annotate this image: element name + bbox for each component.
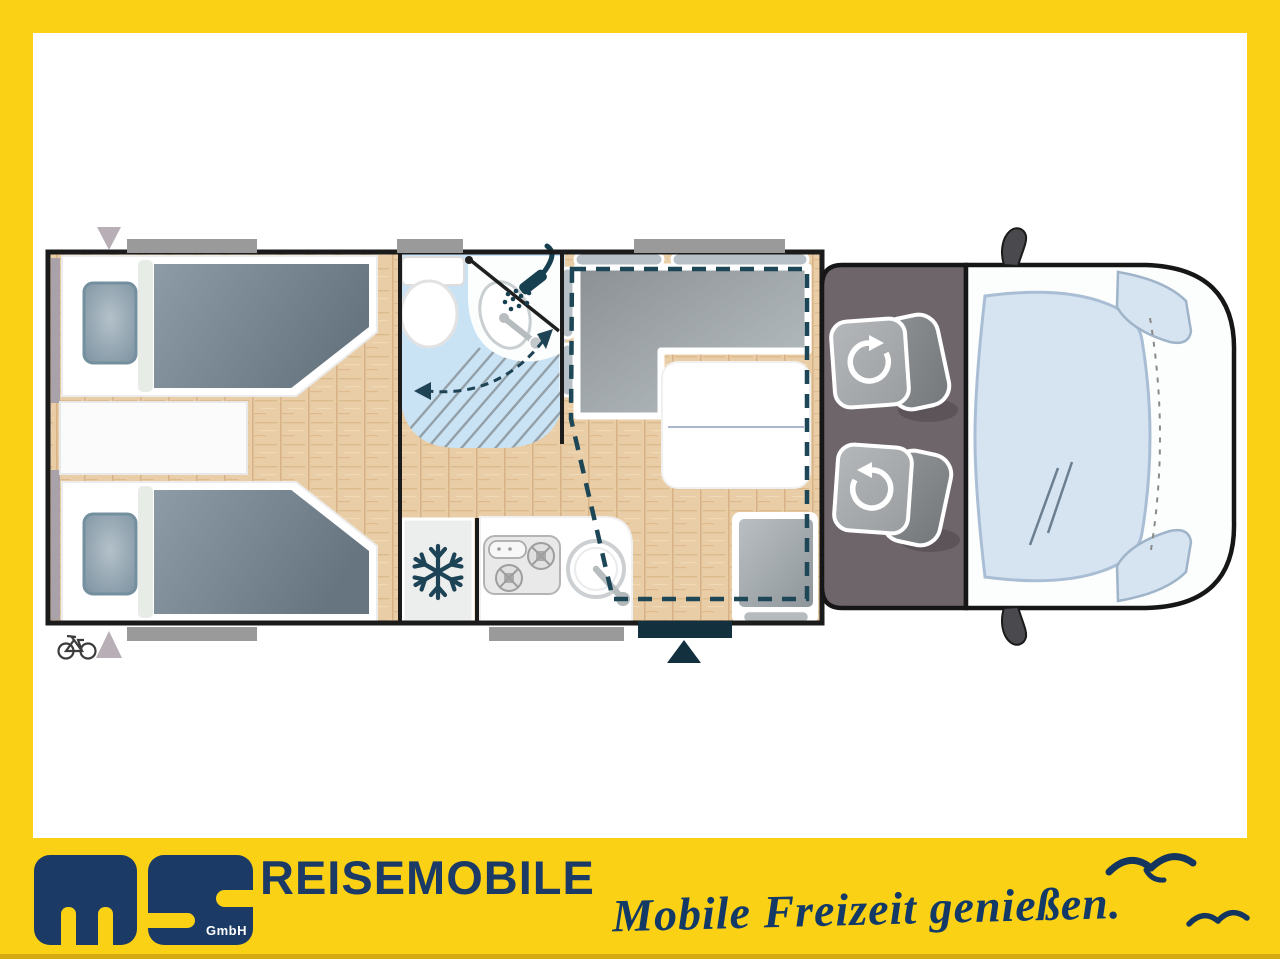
rear-wall-lining [51,258,60,403]
rear-wall-lining [51,470,60,620]
logo-s-block: GmbH [148,855,253,945]
entry-door [638,621,732,638]
cab-floor [822,265,966,608]
bed-head-panel [138,260,153,392]
brand-title: REISEMOBILE [260,850,595,905]
side-mirror [1002,607,1026,645]
side-seat-cushion [739,519,813,607]
hob-controls [489,541,526,558]
sofa-headrest [672,253,808,266]
logo-m-block [34,855,137,945]
windshield [975,292,1150,580]
floorplan-graphic [0,0,1280,959]
seagull-icon [1189,913,1247,924]
bottom-edge [0,954,1280,959]
logo-gmbh-label: GmbH [206,923,247,938]
pillow [84,514,136,594]
cab [822,228,1234,644]
ms-logo: GmbH [34,855,253,945]
side-mirror [1002,228,1026,266]
page: GmbH REISEMOBILE Mobile Freizeit genieße… [0,0,1280,959]
entry-arrow-icon [667,640,701,663]
rear-hatch-arrow-icon [96,631,122,658]
sofa-headrest [575,253,663,266]
bed-head-panel [138,486,153,618]
nightstand [60,402,247,474]
pillow [84,283,136,363]
dinette-table [662,362,810,488]
toilet-bowl [401,281,457,347]
bicycle-icon [59,636,96,659]
hob [484,536,560,594]
rear-hatch-arrow-icon [97,227,121,250]
driver-seat [830,311,953,413]
